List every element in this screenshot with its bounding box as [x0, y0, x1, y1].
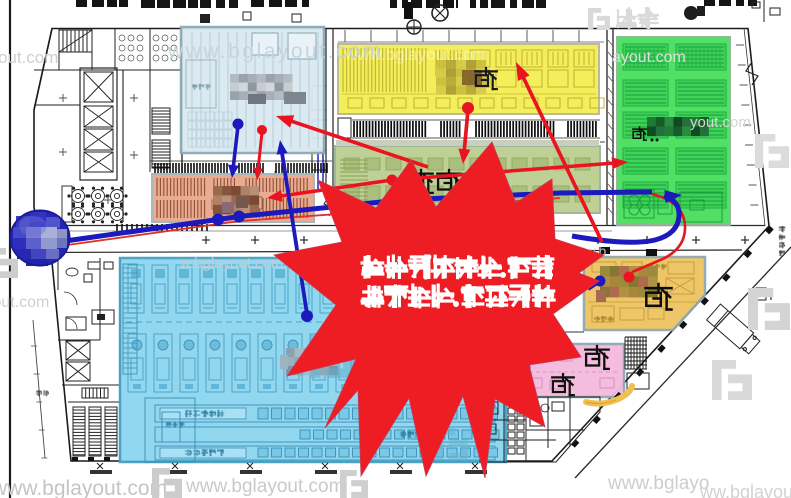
- svg-text:layout.com: layout.com: [0, 294, 49, 311]
- svg-text:www.bglayo: www.bglayo: [607, 473, 709, 494]
- svg-text:www.bglayout.com: www.bglayout.com: [167, 40, 383, 63]
- svg-text:yout.com: yout.com: [690, 114, 751, 131]
- svg-text:ayout.com: ayout.com: [612, 49, 686, 66]
- svg-text:w.bglayout.com: w.bglayout.com: [179, 255, 283, 272]
- svg-text:ww.bglavou: ww.bglavou: [699, 482, 791, 498]
- svg-text:www.bglayout.com: www.bglayout.com: [185, 476, 344, 497]
- svg-text:ayout.com: ayout.com: [0, 48, 58, 67]
- svg-text:www.bglayout.com: www.bglayout.com: [0, 477, 167, 498]
